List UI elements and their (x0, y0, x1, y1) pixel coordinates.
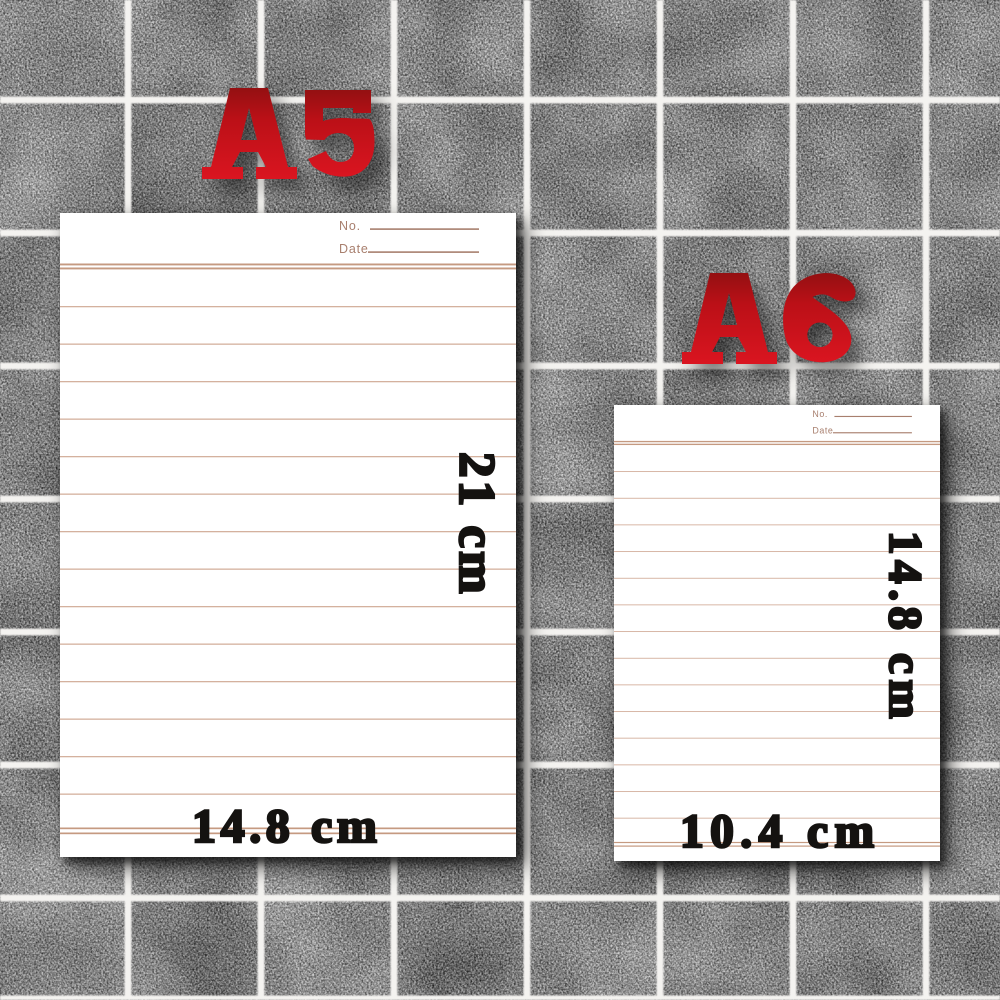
svg-text:No.: No. (339, 219, 361, 233)
svg-text:No.: No. (812, 409, 828, 419)
svg-text:Date: Date (339, 242, 369, 256)
svg-text:Date: Date (812, 425, 833, 435)
